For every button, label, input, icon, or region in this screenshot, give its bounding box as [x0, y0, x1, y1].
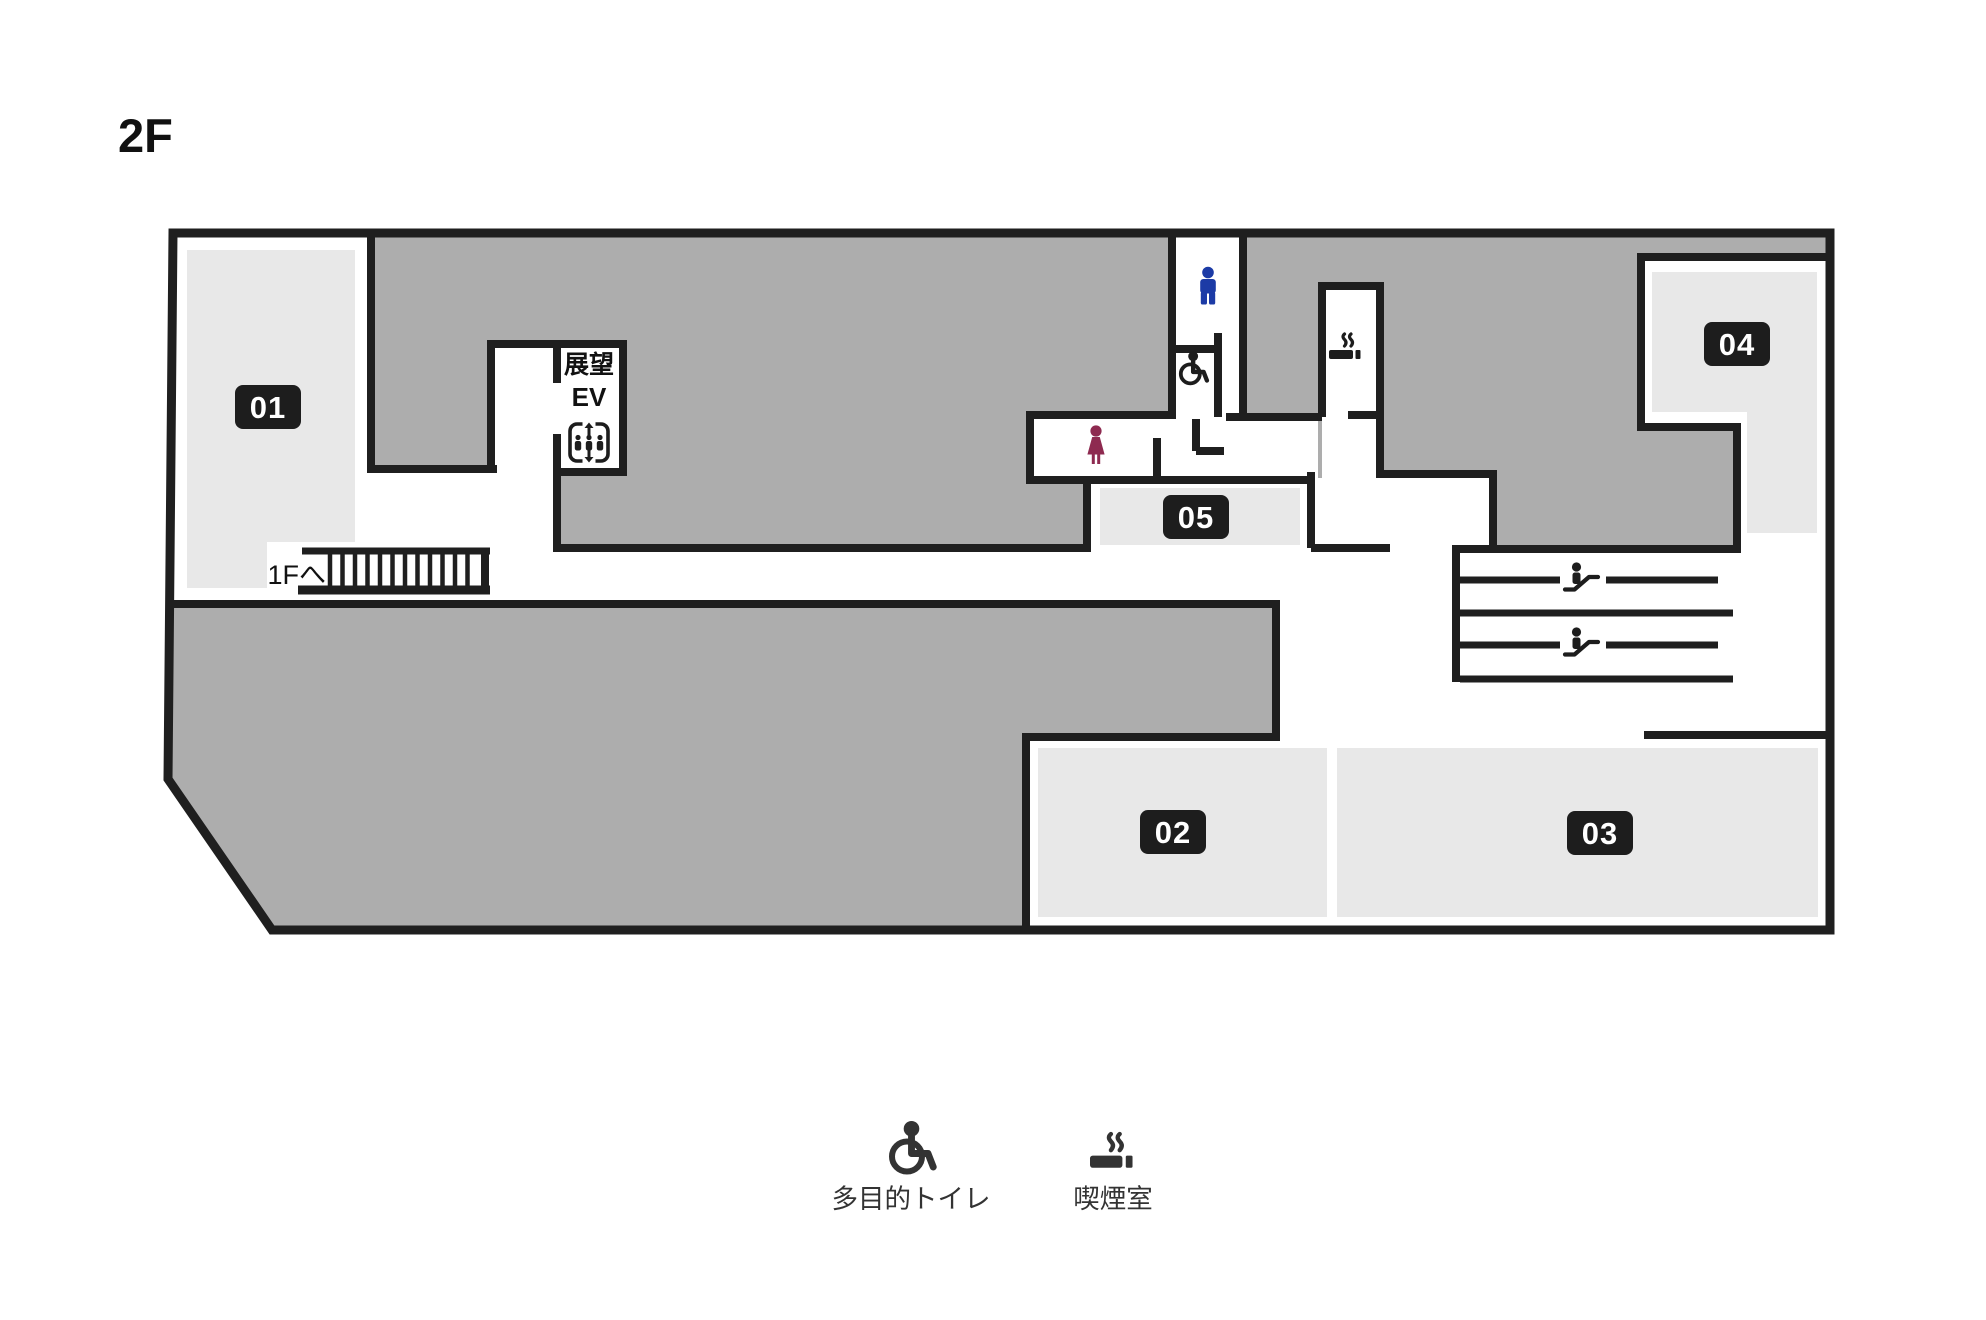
- legend-label-smoking-room: 喫煙室: [1073, 1184, 1153, 1214]
- legend-item-accessible-toilet: 多目的トイレ: [832, 1121, 991, 1214]
- legend-label-accessible-toilet: 多目的トイレ: [832, 1184, 991, 1214]
- legend-item-smoking-room: 喫煙室: [1073, 1134, 1153, 1214]
- zone-04-fill-leg: [1747, 272, 1817, 533]
- zone-01-fill-lower: [187, 542, 267, 588]
- elevator-label-line2: EV: [572, 382, 607, 412]
- elevator-label-line1: 展望: [564, 351, 614, 379]
- floor-map: 2F: [0, 0, 1986, 1320]
- zone-label-04: 04: [1704, 322, 1770, 366]
- zone-label-05: 05: [1163, 495, 1229, 539]
- legend: 多目的トイレ 喫煙室: [832, 1121, 1153, 1214]
- svg-text:04: 04: [1719, 327, 1755, 362]
- zone-label-03: 03: [1567, 811, 1633, 855]
- svg-text:03: 03: [1582, 816, 1618, 851]
- zone-label-02: 02: [1140, 810, 1206, 854]
- floor-guide-page: 2F: [0, 0, 1986, 1320]
- zone-label-01: 01: [235, 385, 301, 429]
- smoking-icon: [1090, 1134, 1133, 1168]
- svg-text:01: 01: [250, 390, 286, 425]
- stairs-label: 1Fへ: [267, 560, 326, 590]
- womens-toilet-area: [1026, 412, 1200, 483]
- smoking-room-area: [1322, 286, 1378, 478]
- svg-text:02: 02: [1155, 815, 1191, 850]
- page-title: 2F: [118, 109, 173, 162]
- svg-text:05: 05: [1178, 500, 1214, 535]
- wheelchair-icon: [892, 1121, 933, 1172]
